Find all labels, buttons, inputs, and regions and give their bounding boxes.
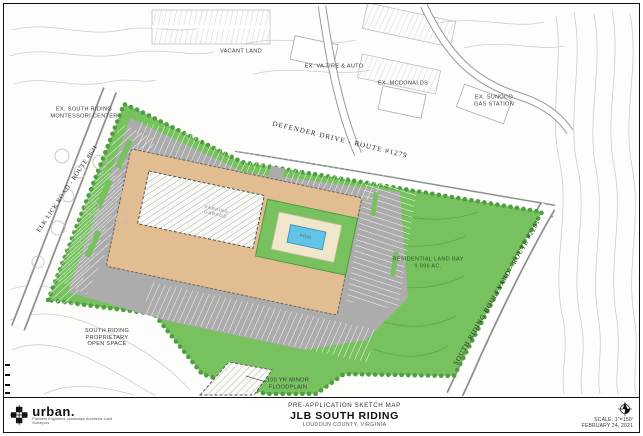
sheet-location: LOUDOUN COUNTY, VIRGINIA: [303, 422, 387, 428]
title-block: urban. Planners Engineers Landscape Arch…: [4, 397, 639, 432]
label-residential-land-bay: RESIDENTIAL LAND BAY 9.996 AC.: [392, 256, 463, 269]
label-montessori: EX. SOUTH RIDING MONTESSORI CENTER: [50, 106, 117, 119]
label-sunoco: EX. SUNOCO GAS STATION: [474, 94, 514, 107]
logo-text: urban.: [32, 406, 122, 417]
north-arrow-icon: [617, 401, 633, 417]
sheet-title: JLB SOUTH RIDING: [290, 410, 399, 422]
label-floodplain: 100 YR MINOR FLOODPLAIN: [267, 377, 309, 390]
title-block-right: SCALE: 1"=150' FEBRUARY 24, 2021: [567, 398, 639, 432]
title-block-center: PRE-APPLICATION SKETCH MAP JLB SOUTH RID…: [122, 398, 567, 432]
site-map: VACANT LAND EX. VA TIRE & AUTO EX. MCDON…: [4, 4, 639, 397]
urban-logo-icon: [10, 404, 28, 426]
label-open-space: SOUTH RIDING PROPRIETARY OPEN SPACE: [85, 328, 129, 348]
title-block-logo: urban. Planners Engineers Landscape Arch…: [4, 398, 122, 432]
label-vacant-land: VACANT LAND: [220, 49, 262, 56]
doc-type: PRE-APPLICATION SKETCH MAP: [288, 402, 401, 409]
plan-sheet: VACANT LAND EX. VA TIRE & AUTO EX. MCDON…: [0, 0, 643, 436]
date-text: FEBRUARY 24, 2021: [582, 423, 633, 429]
label-mcdonalds: EX. MCDONALDS: [378, 81, 428, 88]
label-va-tire: EX. VA TIRE & AUTO: [305, 64, 364, 71]
logo-tagline: Planners Engineers Landscape Architects …: [32, 417, 122, 425]
sheet-border: VACANT LAND EX. VA TIRE & AUTO EX. MCDON…: [3, 3, 640, 433]
